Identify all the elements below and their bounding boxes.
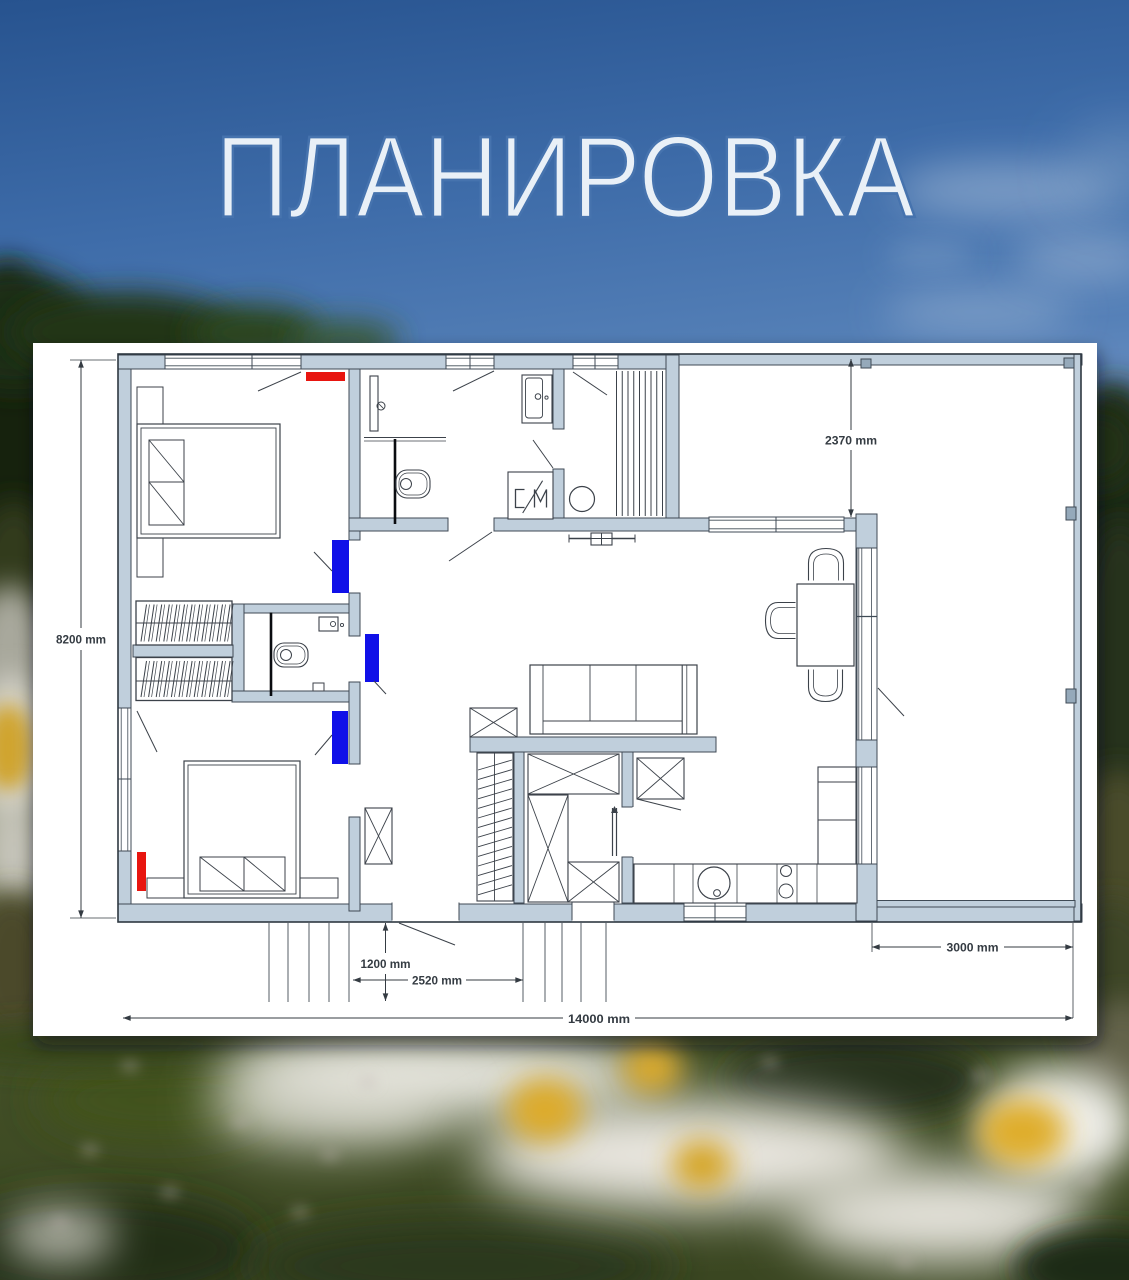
svg-text:ПЛАНИРОВКА: ПЛАНИРОВКА <box>215 112 916 242</box>
svg-text:2520 mm: 2520 mm <box>412 974 462 988</box>
svg-text:3000 mm: 3000 mm <box>947 941 999 955</box>
svg-text:14000 mm: 14000 mm <box>568 1012 630 1026</box>
svg-text:8200 mm: 8200 mm <box>56 633 106 647</box>
svg-text:1200 mm: 1200 mm <box>361 957 411 971</box>
svg-text:2370 mm: 2370 mm <box>825 434 877 448</box>
